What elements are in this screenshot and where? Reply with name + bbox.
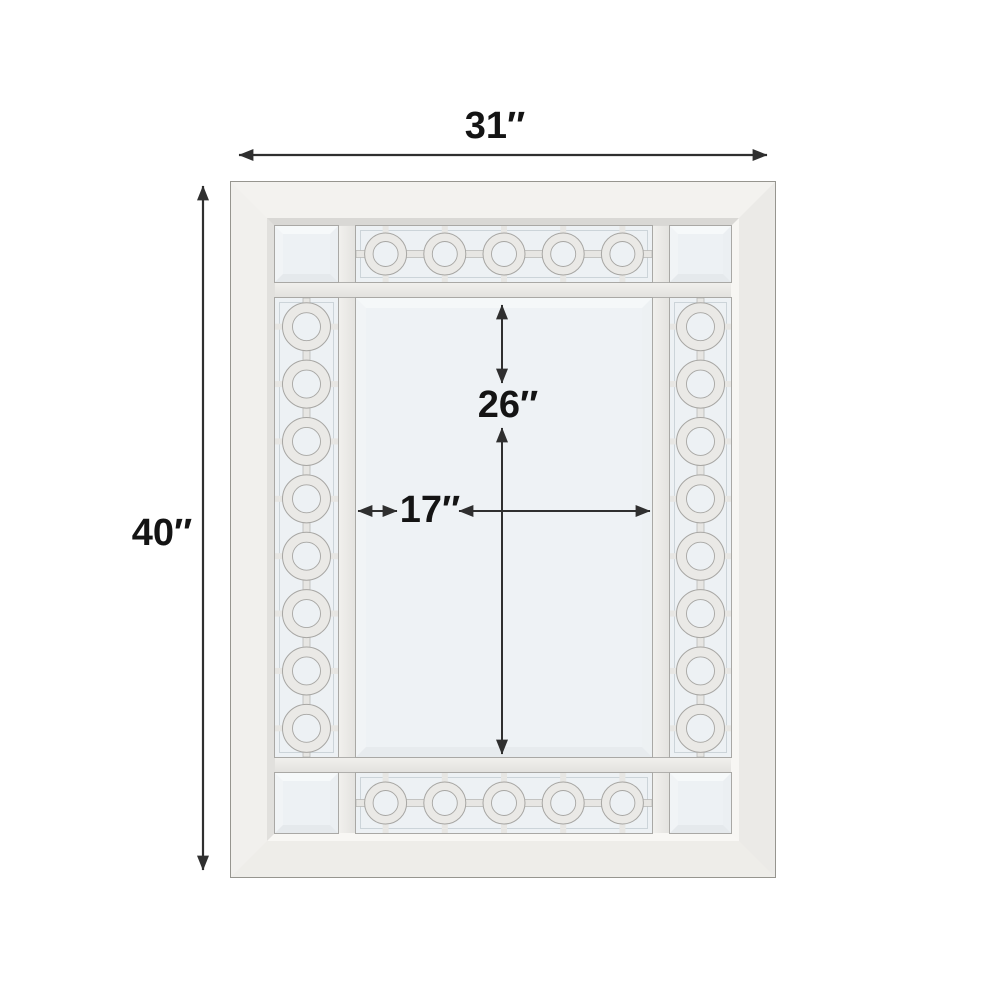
vertical-rail-right [652,226,670,833]
circle-band-bottom [356,773,652,833]
overall-width-label: 31″ [465,107,525,145]
circle-band-right [670,298,731,757]
mirror-outer-frame [231,182,775,877]
corner-mirror-bottom-left [275,773,338,833]
horizontal-rail-top [275,282,731,298]
frame-inner-panel-grid [275,226,731,833]
vertical-rail-left [338,226,356,833]
inner-height-label: 26″ [478,386,538,424]
circle-band-top [356,226,652,282]
corner-mirror-top-right [670,226,731,282]
horizontal-rail-bottom [275,757,731,773]
overall-height-label: 40″ [132,514,192,552]
corner-mirror-bottom-right [670,773,731,833]
corner-mirror-top-left [275,226,338,282]
inner-width-label: 17″ [400,491,460,529]
circle-band-left [275,298,338,757]
frame-inner-bevel [267,218,739,841]
dimension-diagram-canvas: 31″ 40″ 26″ 17″ [0,0,1000,1000]
